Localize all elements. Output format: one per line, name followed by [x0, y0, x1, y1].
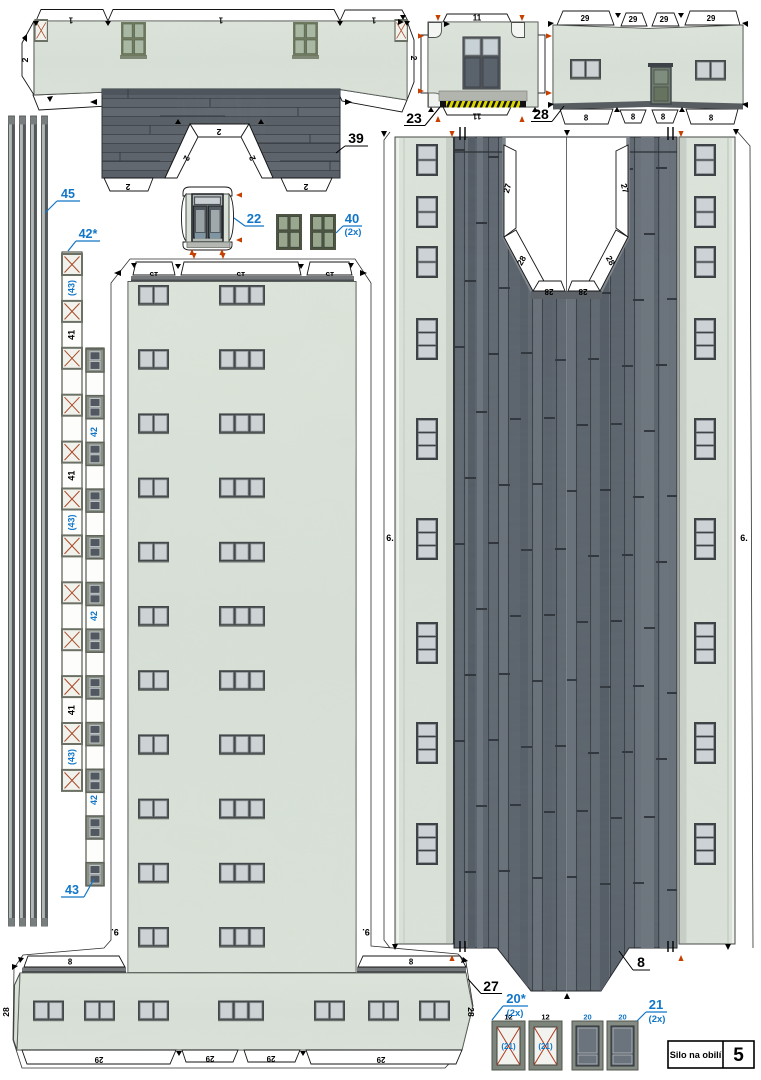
svg-text:1: 1: [371, 16, 376, 25]
svg-text:20*: 20*: [506, 991, 526, 1006]
svg-text:28: 28: [1, 1007, 11, 1017]
svg-text:29: 29: [266, 1054, 275, 1063]
svg-text:12: 12: [541, 1013, 549, 1022]
svg-text:23: 23: [406, 110, 422, 126]
svg-text:8: 8: [637, 954, 645, 970]
svg-text:29: 29: [707, 14, 716, 23]
svg-text:29: 29: [94, 1055, 103, 1064]
svg-text:2: 2: [409, 56, 419, 61]
svg-text:29: 29: [205, 1054, 214, 1063]
svg-text:8: 8: [584, 114, 589, 123]
svg-text:(2x): (2x): [649, 1014, 666, 1025]
svg-text:8: 8: [631, 113, 636, 122]
svg-text:(2x): (2x): [345, 227, 362, 238]
svg-text:29: 29: [660, 15, 669, 24]
svg-text:2: 2: [303, 182, 308, 192]
svg-text:22: 22: [247, 211, 261, 226]
svg-text:41: 41: [67, 330, 77, 340]
svg-text:42: 42: [89, 795, 99, 805]
svg-text:20: 20: [583, 1013, 591, 1022]
svg-text:5: 5: [733, 1045, 744, 1066]
svg-text:28: 28: [544, 287, 553, 296]
svg-text:(43): (43): [67, 280, 77, 296]
svg-text:45: 45: [61, 187, 75, 201]
svg-text:41: 41: [67, 705, 77, 715]
svg-text:8: 8: [68, 958, 73, 967]
svg-text:11: 11: [472, 112, 481, 121]
svg-text:(21): (21): [538, 1042, 553, 1051]
svg-text:8: 8: [409, 958, 414, 967]
svg-text:1: 1: [218, 16, 223, 25]
svg-text:1: 1: [68, 16, 73, 25]
svg-text:(2x): (2x): [507, 1008, 524, 1019]
svg-text:21: 21: [649, 997, 663, 1012]
svg-text:41: 41: [67, 471, 77, 481]
svg-text:28: 28: [578, 287, 587, 296]
svg-text:42*: 42*: [79, 227, 98, 241]
svg-text:(43): (43): [67, 514, 77, 530]
svg-text:9.: 9.: [362, 927, 370, 937]
svg-text:29: 29: [629, 15, 638, 24]
svg-text:43: 43: [65, 883, 79, 897]
svg-text:39: 39: [348, 130, 364, 146]
svg-text:6.: 6.: [740, 533, 748, 543]
svg-text:20: 20: [618, 1013, 626, 1022]
svg-text:(21): (21): [501, 1042, 516, 1051]
svg-text:9.: 9.: [111, 927, 119, 937]
svg-text:(43): (43): [67, 749, 77, 765]
svg-text:27: 27: [483, 978, 499, 994]
svg-text:29: 29: [581, 14, 590, 23]
svg-text:2: 2: [20, 57, 30, 62]
svg-text:8: 8: [661, 113, 666, 122]
svg-text:8: 8: [709, 114, 714, 123]
svg-text:11: 11: [473, 14, 482, 23]
svg-text:2: 2: [125, 182, 130, 192]
svg-text:2: 2: [216, 127, 221, 137]
svg-text:6.: 6.: [386, 533, 394, 543]
svg-text:42: 42: [89, 611, 99, 621]
svg-text:40: 40: [345, 211, 359, 226]
svg-text:29: 29: [376, 1055, 385, 1064]
svg-text:28: 28: [466, 1007, 476, 1017]
svg-text:Silo na obilí: Silo na obilí: [670, 1050, 722, 1060]
svg-text:28: 28: [533, 106, 549, 122]
svg-text:42: 42: [89, 427, 99, 437]
